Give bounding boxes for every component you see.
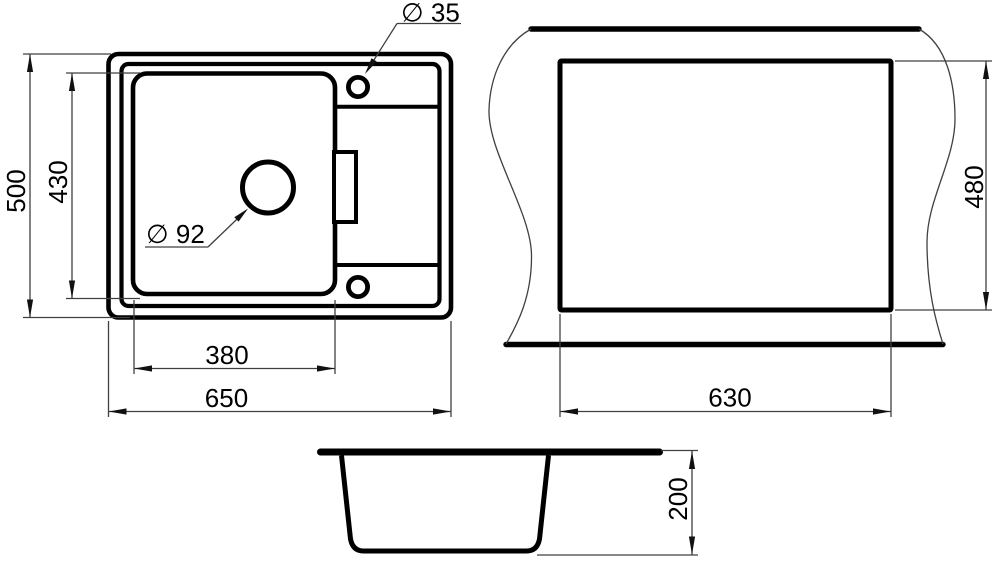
tap-hole-bottom — [348, 277, 367, 296]
overflow-tab — [334, 152, 356, 222]
dim-cutout-depth: 480 — [895, 61, 992, 310]
arrowhead — [27, 54, 33, 72]
arrowhead — [27, 300, 33, 318]
arrowhead — [689, 451, 695, 469]
tap-hole-top — [348, 77, 367, 96]
arrowhead — [873, 408, 891, 414]
arrowhead — [983, 292, 989, 310]
dimension-label: 630 — [708, 383, 751, 413]
top-view: 500 430 380 650 — [1, 0, 461, 417]
dimension-label: 380 — [205, 340, 248, 370]
break-line-right — [919, 29, 955, 344]
bowl-profile — [342, 456, 549, 552]
arrowhead — [560, 408, 578, 414]
cutout-view: 480 630 — [489, 29, 992, 417]
arrowhead — [69, 73, 75, 91]
drain-hole — [243, 162, 294, 213]
arrowhead — [983, 61, 989, 79]
dimension-label: 500 — [1, 169, 31, 212]
cutout-outline — [560, 61, 891, 310]
dimension-label: 430 — [43, 160, 73, 203]
drain-diameter-label: ∅ 92 — [146, 219, 205, 249]
arrowhead — [317, 365, 335, 371]
drawing-canvas: 500 430 380 650 — [0, 0, 1000, 571]
dim-cutout-width: 630 — [560, 314, 891, 417]
arrowhead — [689, 537, 695, 555]
dimension-label: 650 — [205, 383, 248, 413]
dimension-label: 200 — [663, 477, 693, 520]
dimension-label: 480 — [959, 165, 989, 208]
arrowhead — [134, 365, 152, 371]
break-line-left — [489, 29, 532, 344]
sink-technical-drawing: 500 430 380 650 — [0, 0, 1000, 571]
arrowhead — [109, 408, 127, 414]
arrowhead — [69, 281, 75, 299]
bowl-outline — [133, 74, 335, 295]
arrowhead — [433, 408, 451, 414]
dim-bowl-height: 200 — [537, 451, 698, 556]
side-view: 200 — [321, 451, 699, 556]
tap-hole-diameter-label: ∅ 35 — [401, 0, 460, 28]
